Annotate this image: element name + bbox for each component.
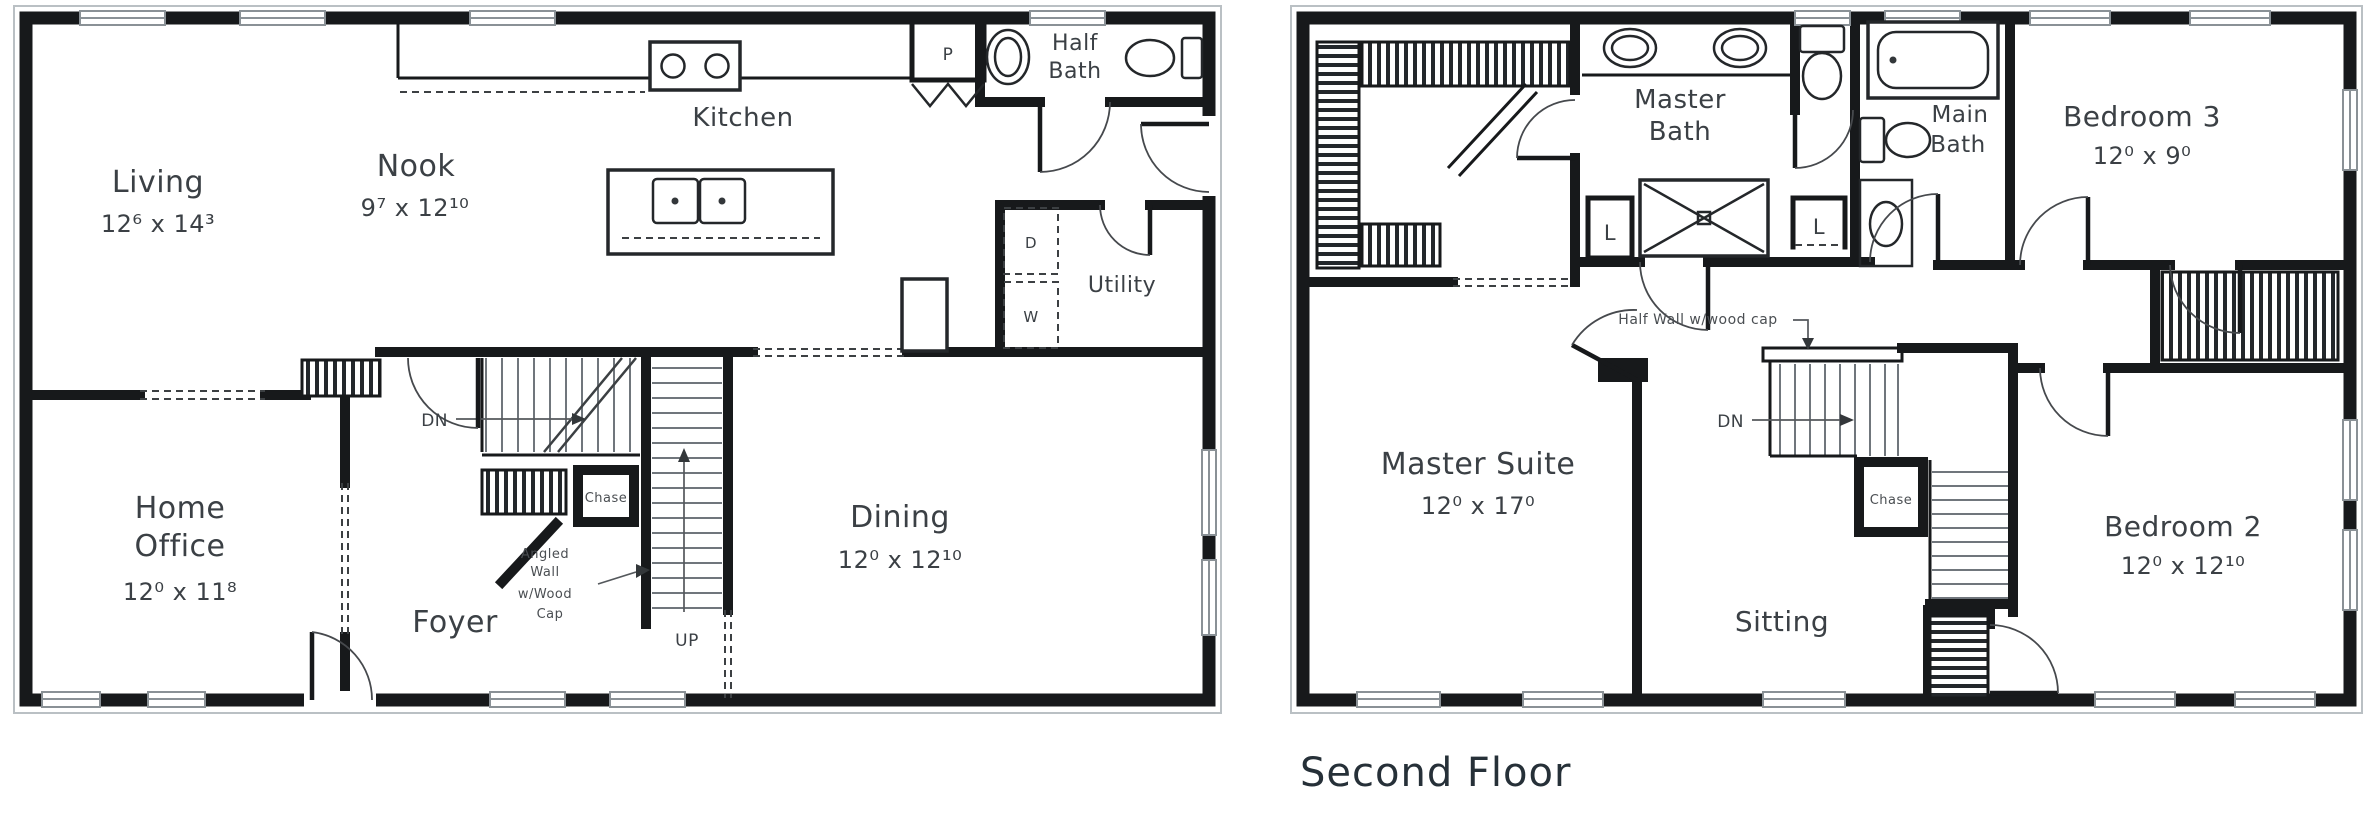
sink-niche [1860, 180, 1912, 266]
doors-second-floor [1517, 100, 2240, 693]
floor-plan-drawing: Living 12⁶ x 14³ Nook 9⁷ x 12¹⁰ Kitchen … [0, 0, 2363, 823]
linen1-label: L [1604, 221, 1616, 245]
master-suite-dims: 12⁰ x 17⁰ [1421, 492, 1535, 520]
toilet-icon [1886, 123, 1930, 157]
cased-openings-first-floor [140, 349, 907, 698]
bedroom2-dims: 12⁰ x 12¹⁰ [2121, 552, 2245, 580]
floor-plan-page: Living 12⁶ x 14³ Nook 9⁷ x 12¹⁰ Kitchen … [0, 0, 2363, 823]
angled-wall-note-4: Cap [537, 607, 564, 622]
refrigerator-icon [902, 279, 947, 351]
home-office-dims: 12⁰ x 11⁸ [123, 578, 237, 606]
master-closet [1317, 42, 1570, 268]
second-floor-plan: Master Bath Main Bath Bedroom 3 12⁰ x 9⁰… [1291, 6, 2362, 713]
closet-rod [1362, 42, 1570, 86]
up-arrow-icon [678, 448, 690, 462]
linen2-label: L [1813, 215, 1825, 239]
foyer-closet [482, 470, 566, 514]
first-floor-plan: Living 12⁶ x 14³ Nook 9⁷ x 12¹⁰ Kitchen … [14, 6, 1221, 713]
down-arrow-icon [1840, 414, 1854, 426]
main-bath-label-1: Main [1932, 102, 1989, 128]
sitting-label: Sitting [1735, 605, 1829, 638]
master-bath-label-1: Master [1634, 85, 1726, 115]
bedroom2-closet [1930, 616, 1988, 698]
living-dims: 12⁶ x 14³ [101, 210, 215, 238]
closet-rod [1362, 224, 1440, 266]
half-bath-label-1: Half [1052, 31, 1099, 56]
toilet-tank-icon [1800, 26, 1844, 52]
back-door-opening [1201, 116, 1218, 196]
stairs-down-label: DN [421, 411, 448, 431]
master-suite-label: Master Suite [1381, 447, 1576, 482]
kitchen-fixtures [398, 22, 984, 351]
washer-label: W [1023, 308, 1038, 326]
bifold-door-icon [912, 84, 984, 106]
angled-wall-note-1: Angled [521, 547, 569, 562]
half-wall-leader [1793, 320, 1808, 338]
closet-rod [1317, 42, 1359, 268]
half-bath-label-2: Bath [1048, 59, 1101, 84]
bedroom2-label: Bedroom 2 [2104, 510, 2262, 543]
stove-icon [650, 42, 740, 90]
half-wall-note: Half Wall w/wood cap [1618, 312, 1777, 328]
nook-label: Nook [377, 149, 456, 184]
living-label: Living [112, 165, 204, 200]
chase-label: Chase [1870, 493, 1913, 508]
utility-label: Utility [1088, 273, 1156, 298]
cased-opening [1453, 279, 1573, 286]
chase-label: Chase [585, 491, 628, 506]
toilet-icon [1803, 53, 1841, 99]
laundry-appliances [1004, 208, 1058, 348]
stairs-down-label: DN [1717, 412, 1744, 432]
home-office-label-1: Home [135, 491, 226, 526]
dining-dims: 12⁰ x 12¹⁰ [838, 546, 962, 574]
toilet-tank-icon [1860, 118, 1884, 162]
toilet-icon [1126, 40, 1174, 76]
coat-closet [302, 360, 380, 396]
front-door-opening [304, 691, 376, 709]
master-bath-fixtures [1582, 26, 1845, 258]
angled-wall-note-2: Wall [530, 565, 559, 580]
pantry-label: P [943, 45, 954, 65]
angled-wall-note-3: w/Wood [518, 587, 572, 602]
master-bath-label-2: Bath [1649, 117, 1711, 147]
island [608, 170, 833, 254]
angled-wall-leader [598, 572, 636, 584]
down-arrow-icon [572, 413, 586, 425]
dryer-label: D [1025, 234, 1037, 252]
kitchen-label: Kitchen [692, 103, 793, 133]
main-bath-label-2: Bath [1930, 132, 1985, 158]
half-wall-rail [1763, 348, 1902, 361]
dining-label: Dining [850, 500, 950, 535]
stairs-up-label: UP [675, 631, 699, 651]
bedroom3-label: Bedroom 3 [2063, 100, 2221, 133]
nook-dims: 9⁷ x 12¹⁰ [361, 194, 470, 222]
home-office-label-2: Office [134, 529, 225, 564]
stairs-second-floor [1752, 348, 2008, 604]
bedroom3-closet [2162, 272, 2338, 360]
foyer-label: Foyer [412, 605, 498, 640]
plan-caption: Second Floor [1300, 750, 1571, 796]
bedroom3-dims: 12⁰ x 9⁰ [2093, 142, 2192, 170]
